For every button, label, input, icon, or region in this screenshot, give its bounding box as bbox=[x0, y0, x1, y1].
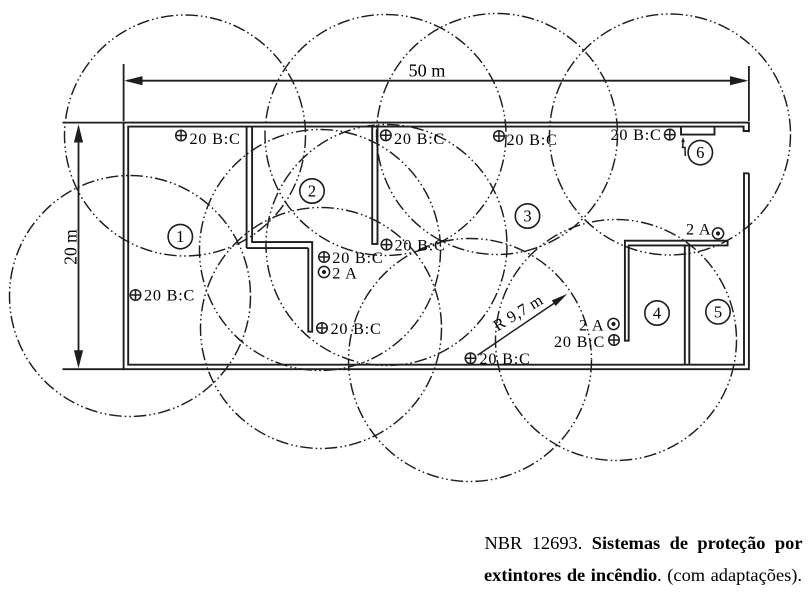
svg-text:20 m: 20 m bbox=[61, 229, 81, 265]
svg-text:6: 6 bbox=[696, 143, 704, 162]
svg-text:20 B:C: 20 B:C bbox=[144, 287, 195, 305]
svg-text:2: 2 bbox=[308, 182, 316, 201]
svg-text:50 m: 50 m bbox=[409, 61, 446, 81]
svg-text:20 B:C: 20 B:C bbox=[611, 126, 662, 144]
svg-text:20 B:C: 20 B:C bbox=[394, 130, 445, 148]
svg-text:2 A: 2 A bbox=[579, 316, 604, 334]
svg-text:4: 4 bbox=[653, 304, 661, 323]
svg-text:20 B:C: 20 B:C bbox=[190, 130, 241, 148]
svg-text:2 A: 2 A bbox=[686, 221, 711, 239]
svg-text:20 B:C: 20 B:C bbox=[395, 236, 446, 254]
svg-text:5: 5 bbox=[714, 302, 722, 321]
svg-text:20 B:C: 20 B:C bbox=[480, 350, 531, 368]
svg-text:20 B:C: 20 B:C bbox=[331, 320, 382, 338]
svg-text:3: 3 bbox=[523, 207, 531, 226]
svg-text:20 B:C: 20 B:C bbox=[554, 333, 605, 351]
svg-text:2 A: 2 A bbox=[332, 264, 357, 282]
svg-text:1: 1 bbox=[176, 227, 184, 246]
svg-text:20 B:C: 20 B:C bbox=[507, 131, 558, 149]
